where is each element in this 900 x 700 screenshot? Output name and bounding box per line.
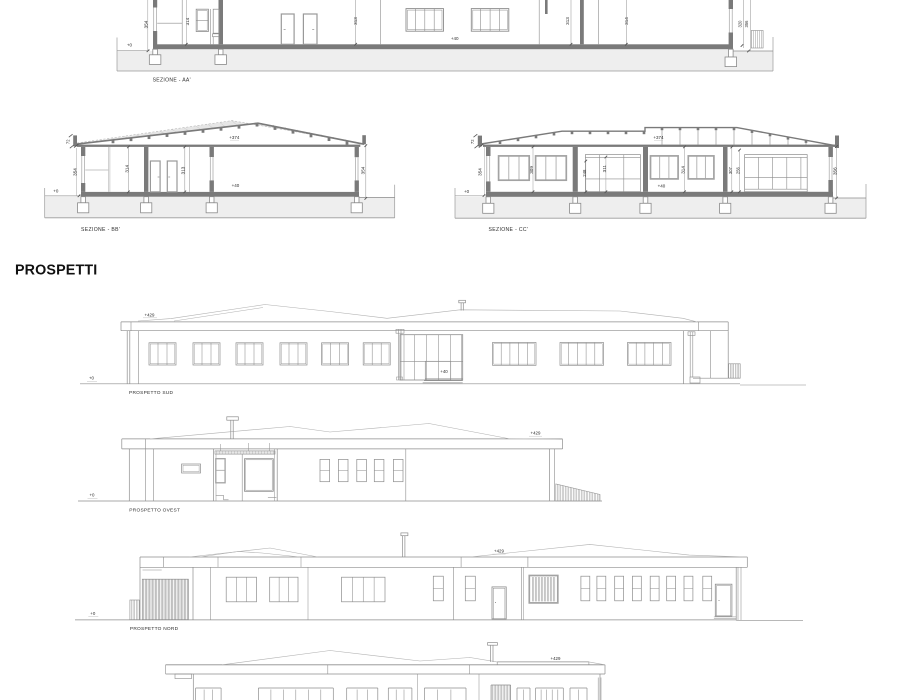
svg-text:354: 354 bbox=[478, 168, 483, 176]
svg-text:309: 309 bbox=[529, 166, 534, 174]
svg-text:+429: +429 bbox=[145, 312, 155, 317]
svg-text:354: 354 bbox=[72, 168, 77, 176]
svg-text:313: 313 bbox=[353, 17, 358, 25]
svg-text:+0: +0 bbox=[89, 376, 95, 381]
svg-text:311: 311 bbox=[602, 165, 607, 173]
svg-text:+374: +374 bbox=[653, 135, 664, 140]
svg-text:+0: +0 bbox=[90, 611, 96, 616]
svg-text:PROSPETTO NORD: PROSPETTO NORD bbox=[130, 626, 179, 632]
svg-text:+429: +429 bbox=[531, 430, 541, 435]
svg-text:313: 313 bbox=[181, 166, 186, 174]
svg-text:PROSPETTO SUD: PROSPETTO SUD bbox=[129, 390, 173, 396]
svg-text:248: 248 bbox=[582, 169, 587, 177]
svg-text:356: 356 bbox=[744, 20, 749, 28]
svg-text:320: 320 bbox=[738, 20, 743, 28]
svg-text:PROSPETTO OVEST: PROSPETTO OVEST bbox=[129, 508, 180, 514]
svg-text:307: 307 bbox=[728, 166, 733, 174]
svg-text:SEZIONE - BB': SEZIONE - BB' bbox=[81, 227, 120, 233]
svg-text:+40: +40 bbox=[451, 36, 459, 41]
svg-text:+429: +429 bbox=[551, 656, 561, 661]
svg-text:SEZIONE - AA': SEZIONE - AA' bbox=[153, 77, 191, 83]
svg-text:256: 256 bbox=[736, 166, 741, 174]
svg-text:+0: +0 bbox=[53, 188, 59, 193]
svg-text:72: 72 bbox=[470, 139, 475, 144]
svg-text:+40: +40 bbox=[658, 184, 666, 189]
svg-text:+0: +0 bbox=[127, 43, 133, 48]
svg-text:72: 72 bbox=[65, 139, 70, 144]
svg-text:PROSPETTI: PROSPETTI bbox=[15, 262, 97, 278]
svg-text:SEZIONE - CC': SEZIONE - CC' bbox=[489, 227, 529, 233]
svg-text:+40: +40 bbox=[232, 183, 240, 188]
svg-text:314: 314 bbox=[124, 165, 129, 173]
svg-text:356: 356 bbox=[832, 167, 837, 175]
svg-text:+40: +40 bbox=[440, 369, 448, 374]
svg-text:314: 314 bbox=[681, 166, 686, 174]
svg-text:+0: +0 bbox=[89, 493, 95, 498]
svg-text:314: 314 bbox=[624, 17, 629, 25]
svg-text:314: 314 bbox=[185, 17, 190, 25]
svg-text:+0: +0 bbox=[464, 189, 470, 194]
svg-text:313: 313 bbox=[565, 17, 570, 25]
svg-text:+374: +374 bbox=[229, 135, 240, 140]
svg-text:+429: +429 bbox=[494, 549, 504, 554]
svg-text:354: 354 bbox=[360, 166, 365, 174]
